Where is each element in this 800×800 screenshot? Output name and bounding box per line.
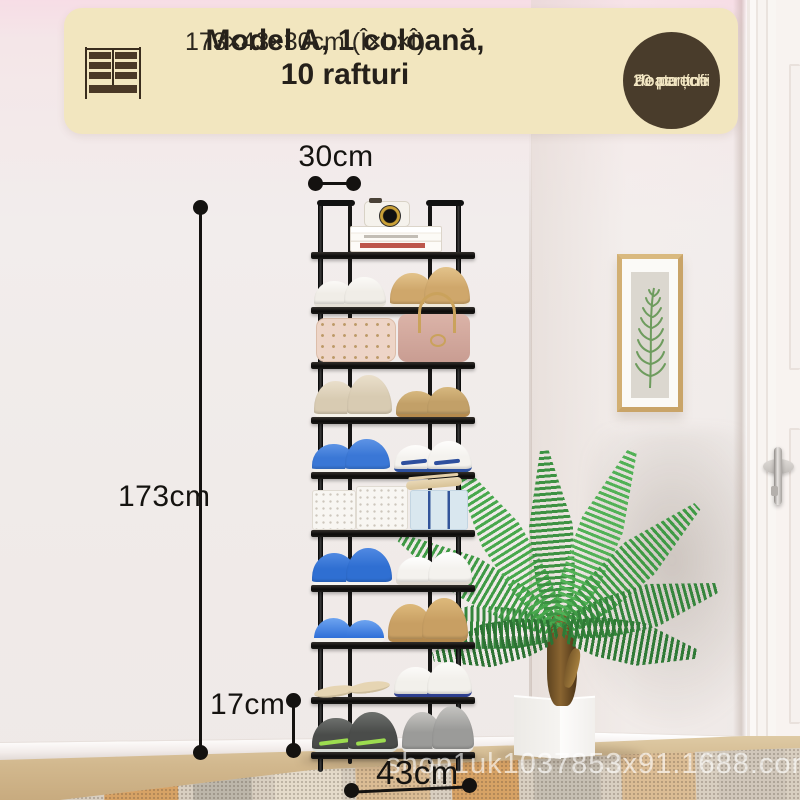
height-dimension-label: 173cm (118, 480, 211, 514)
blue-canvas-sneakers (312, 548, 392, 585)
desert-boots (396, 387, 470, 417)
blue-slides (314, 618, 384, 642)
door-panel-molding (789, 64, 800, 370)
dimension-dot (346, 176, 361, 191)
picture-frame (617, 254, 683, 412)
rack-shelf-3 (311, 362, 475, 369)
books-stack (350, 226, 442, 252)
beige-flipflops (314, 679, 390, 697)
dimension-dot (286, 693, 301, 708)
badge-line: de pantofi (635, 71, 707, 91)
blue-sneakers (312, 439, 390, 472)
dotted-storage-box (356, 486, 408, 530)
rack-shelf-7 (311, 585, 475, 592)
white-sneakers (314, 277, 386, 307)
height-dimension-line (199, 207, 202, 753)
camera (364, 201, 410, 227)
banner-subtitle: 173×43×30cm (Î×L×Î) (185, 28, 425, 57)
rack-shelf-8 (311, 642, 475, 649)
fern-artwork (631, 272, 669, 398)
dimension-dot (308, 176, 323, 191)
rack-shelf-6 (311, 530, 475, 537)
dark-green-accent-sneakers (312, 712, 398, 752)
product-scene: 30cm 173cm 17cm 43cm (0, 0, 800, 800)
door-panel-molding (789, 428, 800, 724)
grey-hightop-boots (402, 706, 474, 752)
top-width-dimension-label: 30cm (296, 140, 376, 174)
dimension-dot (462, 778, 477, 793)
rack-top-handle-left (317, 200, 355, 206)
dimension-dot (193, 745, 208, 760)
dimension-dot (193, 200, 208, 215)
spec-banner: Model A, 1 coloană, 10 rafturi 173×43×30… (64, 8, 738, 134)
shoe-rack (310, 196, 476, 776)
beige-hightop-sneakers (314, 375, 392, 417)
dimension-dot (286, 743, 301, 758)
shelf-height-dimension-label: 17cm (210, 688, 285, 722)
rack-shelf-1 (311, 252, 475, 259)
fern-leaf-icon (631, 280, 669, 392)
tan-hightop-boots (388, 598, 468, 642)
door-lock-knob (771, 486, 778, 496)
rack-shelf-4 (311, 417, 475, 424)
white-navy-sneakers (394, 662, 472, 697)
dotted-storage-box (312, 490, 356, 530)
dimension-dot (344, 783, 359, 798)
rack-shelf-9 (311, 697, 475, 704)
door-handle (774, 447, 782, 505)
blue-fabric-box (410, 490, 468, 530)
white-navy-sneakers (394, 441, 472, 472)
rack-top-handle-right (426, 200, 464, 206)
capacity-badge: Poate ține 20 perechi de pantofi (623, 32, 720, 129)
mauve-chain-handbag (398, 314, 470, 362)
pink-studded-handbag (316, 318, 396, 362)
door-casing (747, 0, 776, 745)
white-sneakers (396, 552, 472, 585)
